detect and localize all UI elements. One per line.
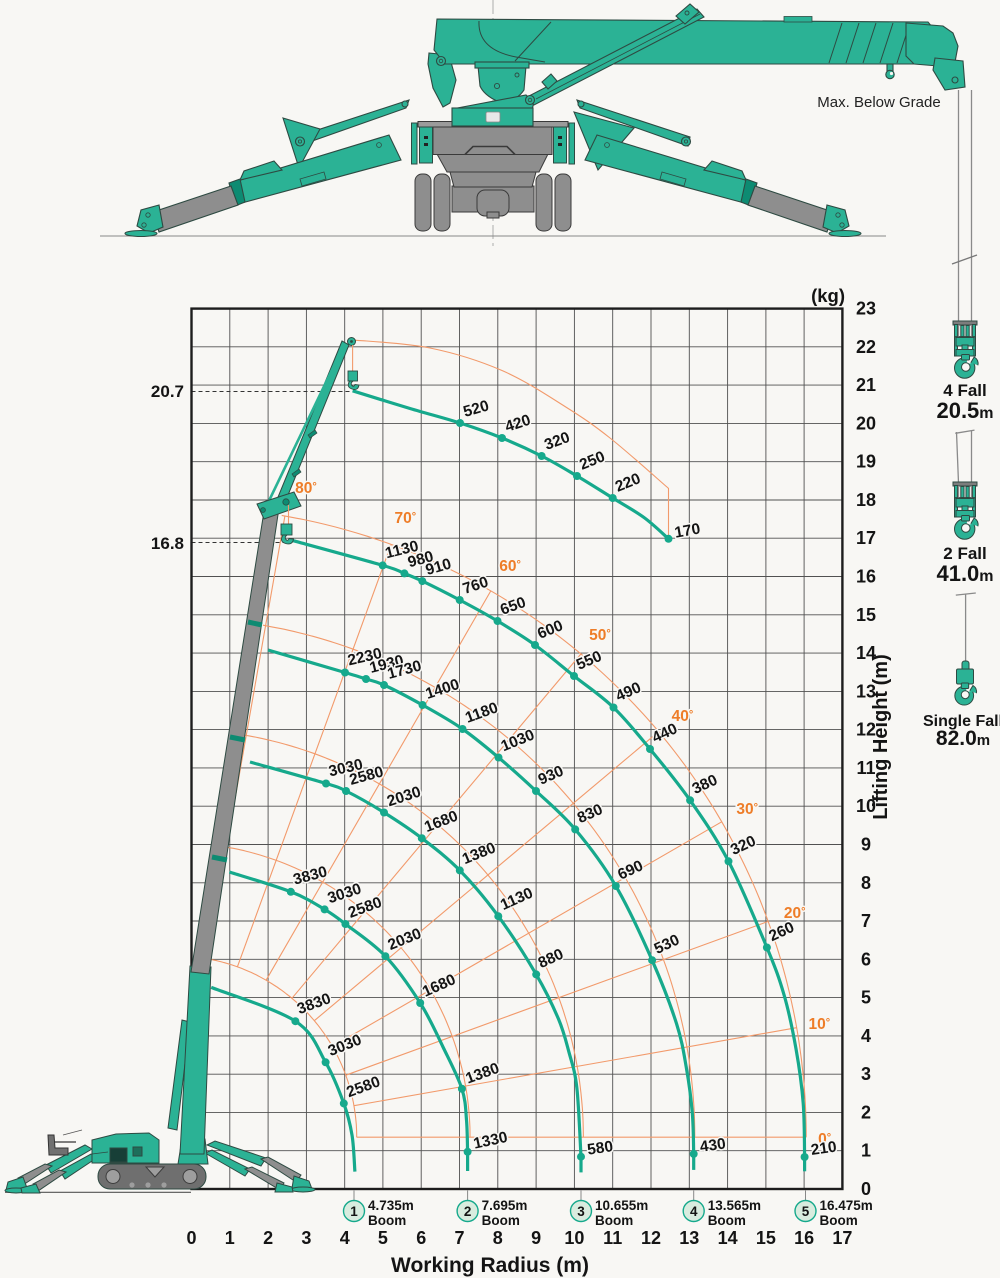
svg-text:1680: 1680 — [420, 971, 458, 1001]
svg-text:Boom: Boom — [820, 1213, 858, 1228]
svg-text:1180: 1180 — [463, 699, 500, 726]
svg-text:16: 16 — [856, 567, 876, 587]
svg-text:490: 490 — [613, 679, 644, 705]
svg-text:6: 6 — [861, 949, 871, 969]
svg-text:3: 3 — [577, 1204, 585, 1219]
svg-text:690: 690 — [615, 857, 646, 883]
svg-text:80°: 80° — [295, 480, 317, 497]
svg-text:14: 14 — [718, 1228, 738, 1248]
svg-text:520: 520 — [461, 397, 491, 420]
svg-text:60°: 60° — [499, 558, 521, 575]
svg-text:5: 5 — [861, 988, 871, 1008]
svg-text:600: 600 — [535, 617, 565, 642]
svg-text:30°: 30° — [736, 801, 758, 818]
svg-text:10°: 10° — [808, 1016, 830, 1033]
svg-text:16.8: 16.8 — [151, 534, 184, 553]
svg-text:3: 3 — [861, 1064, 871, 1084]
svg-text:320: 320 — [542, 429, 572, 454]
svg-text:13: 13 — [679, 1228, 699, 1248]
svg-text:7: 7 — [861, 911, 871, 931]
svg-text:1680: 1680 — [422, 808, 460, 836]
svg-text:11: 11 — [603, 1228, 622, 1248]
svg-text:430: 430 — [699, 1135, 727, 1155]
svg-text:22: 22 — [856, 337, 876, 357]
svg-text:Boom: Boom — [368, 1213, 406, 1228]
svg-text:40°: 40° — [672, 708, 694, 725]
svg-text:20.7: 20.7 — [151, 382, 184, 401]
svg-text:1400: 1400 — [423, 676, 461, 703]
svg-text:15: 15 — [756, 1228, 776, 1248]
svg-text:9: 9 — [861, 835, 871, 855]
svg-text:3830: 3830 — [295, 990, 333, 1018]
svg-text:19: 19 — [856, 452, 876, 472]
svg-text:2580: 2580 — [344, 1073, 382, 1101]
svg-text:830: 830 — [575, 801, 606, 827]
svg-text:16: 16 — [794, 1228, 814, 1248]
svg-text:220: 220 — [613, 470, 643, 495]
svg-text:4: 4 — [340, 1228, 350, 1248]
svg-text:420: 420 — [503, 412, 533, 436]
svg-text:18: 18 — [856, 490, 876, 510]
svg-text:1380: 1380 — [460, 839, 498, 868]
svg-text:Boom: Boom — [482, 1213, 520, 1228]
svg-text:41.0m: 41.0m — [936, 561, 993, 586]
svg-text:Boom: Boom — [708, 1213, 746, 1228]
svg-text:0: 0 — [186, 1228, 196, 1248]
svg-text:10: 10 — [564, 1228, 584, 1248]
svg-text:6: 6 — [416, 1228, 426, 1248]
svg-text:23: 23 — [856, 299, 876, 319]
svg-text:580: 580 — [586, 1138, 614, 1158]
svg-text:1: 1 — [861, 1141, 871, 1161]
svg-text:5: 5 — [378, 1228, 388, 1248]
svg-text:13.565m: 13.565m — [708, 1198, 761, 1213]
svg-text:880: 880 — [536, 946, 567, 972]
svg-text:10.655m: 10.655m — [595, 1198, 648, 1213]
svg-text:1030: 1030 — [499, 727, 537, 756]
svg-text:8: 8 — [861, 873, 871, 893]
svg-text:1: 1 — [225, 1228, 235, 1248]
svg-text:210: 210 — [810, 1139, 838, 1159]
svg-text:17: 17 — [832, 1228, 852, 1248]
svg-text:8: 8 — [493, 1228, 503, 1248]
svg-text:7: 7 — [454, 1228, 464, 1248]
svg-text:(kg): (kg) — [811, 285, 845, 306]
svg-text:2: 2 — [263, 1228, 273, 1248]
svg-text:0: 0 — [861, 1179, 871, 1199]
svg-text:5: 5 — [802, 1204, 810, 1219]
svg-text:7.695m: 7.695m — [482, 1198, 528, 1213]
svg-text:Lifting Height (m): Lifting Height (m) — [870, 654, 892, 820]
svg-text:12: 12 — [641, 1228, 661, 1248]
svg-text:930: 930 — [536, 763, 567, 789]
svg-text:21: 21 — [856, 375, 876, 395]
svg-text:1130: 1130 — [498, 885, 536, 914]
svg-text:9: 9 — [531, 1228, 541, 1248]
svg-text:50°: 50° — [589, 627, 611, 644]
svg-text:20.5m: 20.5m — [936, 398, 993, 423]
svg-text:2030: 2030 — [386, 925, 424, 954]
svg-text:250: 250 — [577, 448, 607, 473]
svg-text:4: 4 — [690, 1204, 698, 1219]
svg-text:82.0m: 82.0m — [936, 727, 990, 750]
svg-text:260: 260 — [766, 919, 797, 945]
svg-text:1330: 1330 — [472, 1129, 509, 1153]
svg-text:1: 1 — [350, 1204, 358, 1219]
svg-text:Working Radius (m): Working Radius (m) — [391, 1254, 589, 1277]
svg-text:4.735m: 4.735m — [368, 1198, 414, 1213]
svg-text:16.475m: 16.475m — [820, 1198, 873, 1213]
svg-text:20: 20 — [856, 413, 876, 433]
svg-text:Boom: Boom — [595, 1213, 633, 1228]
svg-text:4: 4 — [861, 1026, 871, 1046]
svg-text:2: 2 — [464, 1204, 472, 1219]
svg-text:15: 15 — [856, 605, 876, 625]
svg-text:380: 380 — [690, 772, 721, 798]
svg-text:3830: 3830 — [291, 863, 329, 888]
svg-text:70°: 70° — [394, 510, 416, 527]
svg-text:Max. Below Grade: Max. Below Grade — [817, 94, 940, 111]
svg-text:320: 320 — [728, 833, 759, 859]
svg-text:17: 17 — [856, 528, 876, 548]
svg-text:2: 2 — [861, 1102, 871, 1122]
svg-text:3: 3 — [301, 1228, 311, 1248]
